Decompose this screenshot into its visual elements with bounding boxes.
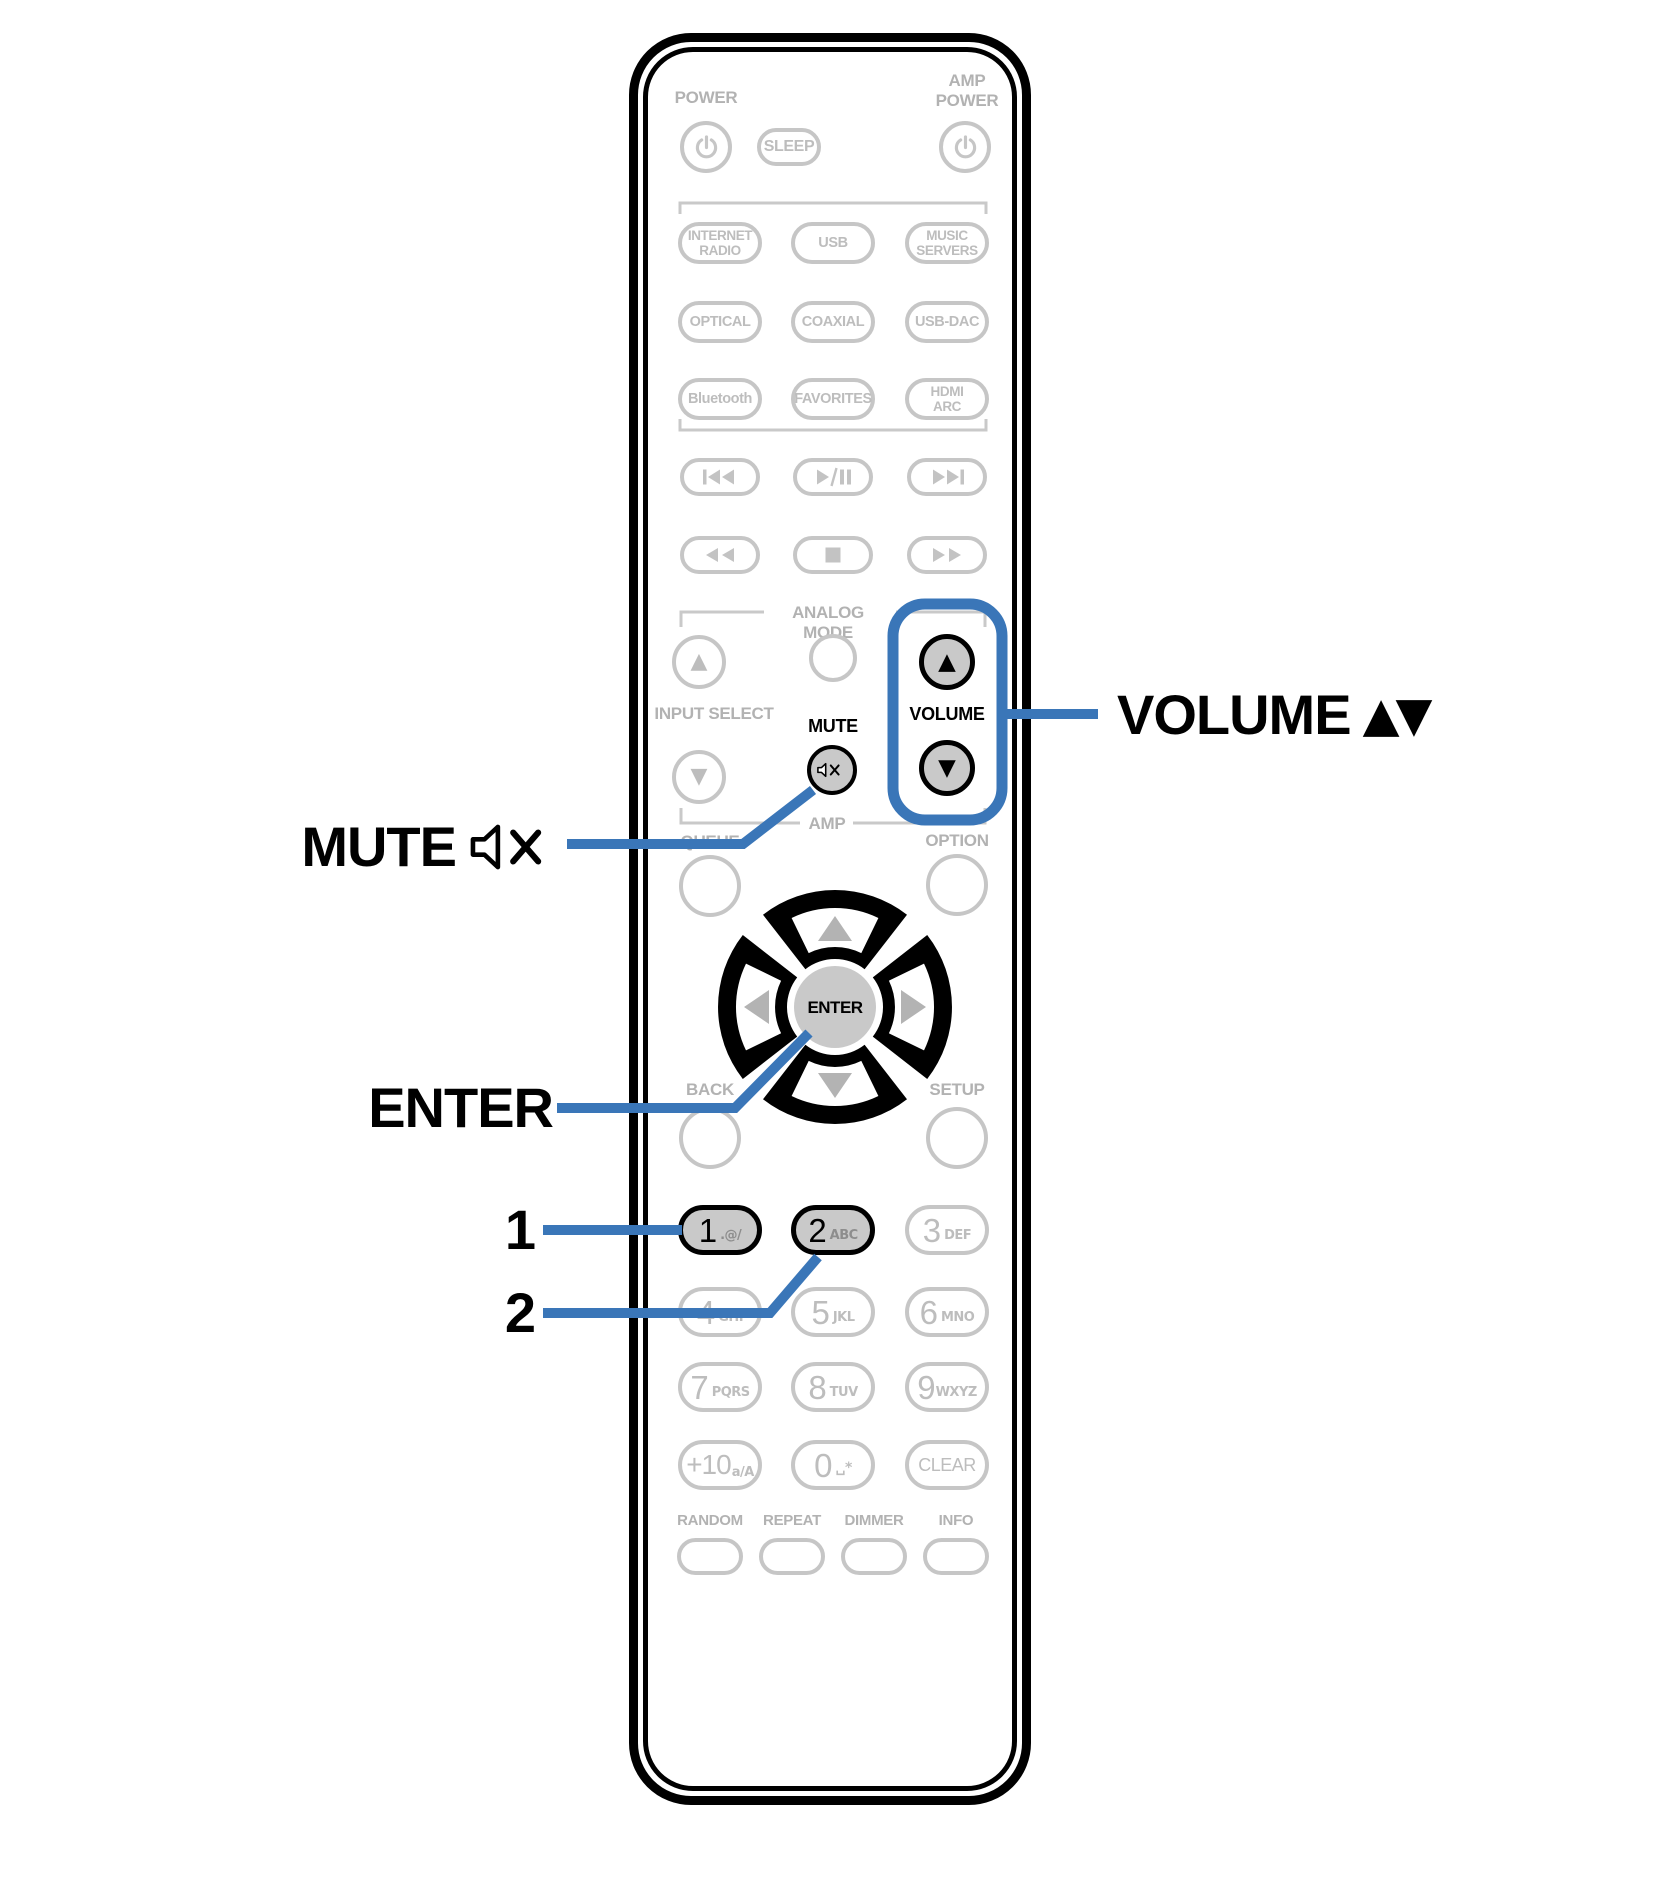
- skip-forward-button[interactable]: [907, 458, 987, 496]
- digit: 0: [814, 1449, 831, 1482]
- volume-up-icon: ▲: [938, 651, 956, 674]
- mute-callout: MUTE: [301, 815, 566, 879]
- power-label: POWER: [664, 88, 748, 108]
- fast-forward-button[interactable]: [907, 536, 987, 574]
- digit-sub: ␣*: [836, 1461, 852, 1475]
- numpad-button-5[interactable]: 5JKL: [791, 1287, 875, 1337]
- digit-sub: JKL: [833, 1311, 855, 1324]
- num2-callout-text: 2: [505, 1285, 535, 1341]
- digit: 5: [811, 1296, 828, 1329]
- volume-arrows-icon: ▲▼: [1363, 691, 1429, 739]
- repeat-button[interactable]: [759, 1538, 825, 1575]
- enter-callout: ENTER: [368, 1076, 553, 1140]
- source-button-music-servers[interactable]: MUSIC SERVERS: [905, 222, 989, 264]
- volume-down-button[interactable]: ▼: [919, 740, 975, 796]
- numpad-button-3[interactable]: 3DEF: [905, 1205, 989, 1255]
- rewind-button[interactable]: [680, 536, 760, 574]
- digit: 6: [920, 1296, 937, 1329]
- input-select-label: INPUT SELECT: [649, 704, 779, 724]
- digit: 2: [808, 1214, 825, 1247]
- skip-back-icon: [698, 467, 742, 487]
- volume-callout: VOLUME▲▼: [1117, 683, 1428, 747]
- queue-label: QUEUE: [668, 832, 752, 852]
- digit-sub: ABC: [830, 1229, 858, 1242]
- source-button-favorites[interactable]: FAVORITES: [791, 378, 875, 420]
- dimmer-button[interactable]: [841, 1538, 907, 1575]
- up-triangle-icon: ▲: [691, 651, 708, 673]
- num1-callout-text: 1: [505, 1202, 535, 1258]
- volume-down-icon: ▼: [938, 757, 956, 780]
- enter-button-label: ENTER: [807, 998, 862, 1017]
- num1-callout: 1: [505, 1198, 535, 1262]
- repeat-label: REPEAT: [750, 1511, 834, 1531]
- fast-forward-icon: [927, 546, 967, 564]
- digit-sub: WXYZ: [936, 1386, 977, 1399]
- numpad-button-4[interactable]: 4GHI: [678, 1287, 762, 1337]
- digit-sub: PQRS: [712, 1386, 750, 1399]
- source-button-coaxial[interactable]: COAXIAL: [791, 301, 875, 343]
- sleep-button[interactable]: SLEEP: [757, 128, 821, 166]
- numpad-button-8[interactable]: 8TUV: [791, 1362, 875, 1412]
- source-button-internet-radio[interactable]: INTERNET RADIO: [678, 222, 762, 264]
- digit-sub: TUV: [830, 1386, 858, 1399]
- amp-power-button[interactable]: [939, 121, 991, 173]
- source-button-usb[interactable]: USB: [791, 222, 875, 264]
- digit-sub: MNO: [941, 1311, 974, 1324]
- skip-forward-icon: [925, 467, 969, 487]
- clear-label: CLEAR: [918, 1455, 976, 1476]
- input-select-down-button[interactable]: ▼: [672, 750, 726, 804]
- digit: +10: [686, 1451, 731, 1479]
- remote-diagram-page: POWER AMPPOWER SLEEP INTERNET RADIO USB …: [0, 0, 1665, 1878]
- digit: 7: [690, 1371, 707, 1404]
- skip-back-button[interactable]: [680, 458, 760, 496]
- numpad-button-6[interactable]: 6MNO: [905, 1287, 989, 1337]
- digit: 8: [808, 1371, 825, 1404]
- digit: 9: [917, 1371, 934, 1404]
- dpad[interactable]: ENTER: [715, 887, 955, 1127]
- stop-icon: [824, 546, 842, 564]
- volume-up-button[interactable]: ▲: [919, 634, 975, 690]
- random-label: RANDOM: [668, 1511, 752, 1531]
- info-button[interactable]: [923, 1538, 989, 1575]
- down-triangle-icon: ▼: [691, 766, 708, 788]
- mute-icon: [817, 762, 847, 778]
- volume-callout-text: VOLUME: [1117, 687, 1351, 743]
- mute-button[interactable]: [807, 745, 857, 795]
- amp-power-line2: POWER: [936, 91, 999, 110]
- digit: 3: [923, 1214, 940, 1247]
- numpad-button-9[interactable]: 9WXYZ: [905, 1362, 989, 1412]
- option-label: OPTION: [915, 831, 999, 851]
- numpad-button-7[interactable]: 7PQRS: [678, 1362, 762, 1412]
- digit: 4: [697, 1296, 714, 1329]
- power-button[interactable]: [680, 121, 732, 173]
- source-button-bluetooth[interactable]: Bluetooth: [678, 378, 762, 420]
- source-button-optical[interactable]: OPTICAL: [678, 301, 762, 343]
- source-button-hdmi-arc[interactable]: HDMI ARC: [905, 378, 989, 420]
- info-label: INFO: [914, 1511, 998, 1531]
- mute-label: MUTE: [792, 716, 874, 736]
- analog-mode-button[interactable]: [809, 634, 857, 682]
- enter-callout-text: ENTER: [368, 1080, 553, 1136]
- numpad-button-1[interactable]: 1.@/: [678, 1205, 762, 1255]
- clear-button[interactable]: CLEAR: [905, 1440, 989, 1490]
- source-button-usb-dac[interactable]: USB-DAC: [905, 301, 989, 343]
- digit-sub: a/A: [732, 1466, 754, 1479]
- numpad-button-plus10[interactable]: +10a/A: [678, 1440, 762, 1490]
- random-button[interactable]: [677, 1538, 743, 1575]
- digit-sub: GHI: [718, 1311, 743, 1324]
- rewind-icon: [700, 546, 740, 564]
- digit: 1: [699, 1214, 716, 1247]
- stop-button[interactable]: [793, 536, 873, 574]
- digit-sub: DEF: [944, 1229, 971, 1242]
- amp-label: AMP: [797, 814, 857, 834]
- play-pause-icon: [811, 467, 855, 487]
- input-select-up-button[interactable]: ▲: [672, 635, 726, 689]
- amp-power-icon: [952, 134, 979, 161]
- amp-power-line1: AMP: [949, 71, 986, 90]
- digit-sub: .@/: [720, 1229, 741, 1242]
- play-pause-button[interactable]: [793, 458, 873, 496]
- dimmer-label: DIMMER: [832, 1511, 916, 1531]
- numpad-button-0[interactable]: 0␣*: [791, 1440, 875, 1490]
- mute-callout-text: MUTE: [301, 819, 456, 875]
- num2-callout: 2: [505, 1281, 535, 1345]
- numpad-button-2[interactable]: 2ABC: [791, 1205, 875, 1255]
- amp-power-label: AMPPOWER: [925, 71, 1009, 111]
- mute-speaker-icon: [470, 824, 566, 870]
- volume-label: VOLUME: [906, 704, 988, 724]
- power-icon: [693, 134, 720, 161]
